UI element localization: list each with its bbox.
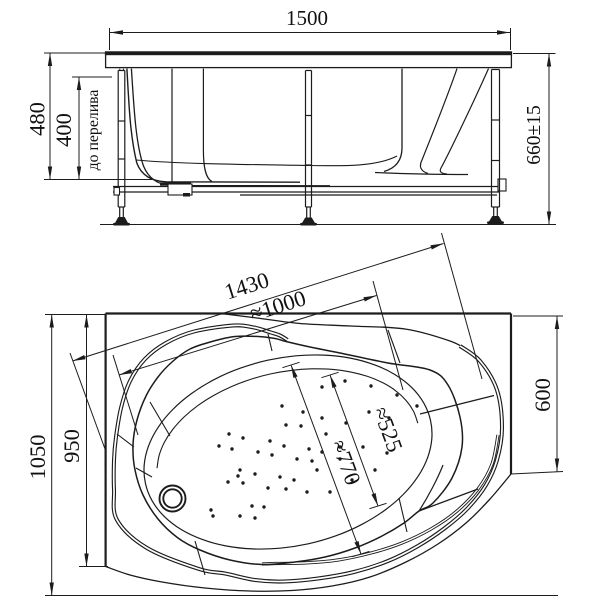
svg-text:400: 400 [51,113,76,147]
svg-text:1050: 1050 [25,435,50,480]
svg-text:1500: 1500 [286,6,328,30]
svg-text:480: 480 [25,102,50,136]
svg-text:до перелива: до перелива [85,90,102,171]
svg-text:660±15: 660±15 [524,105,545,164]
svg-text:950: 950 [59,429,84,463]
svg-text:600: 600 [530,378,555,412]
